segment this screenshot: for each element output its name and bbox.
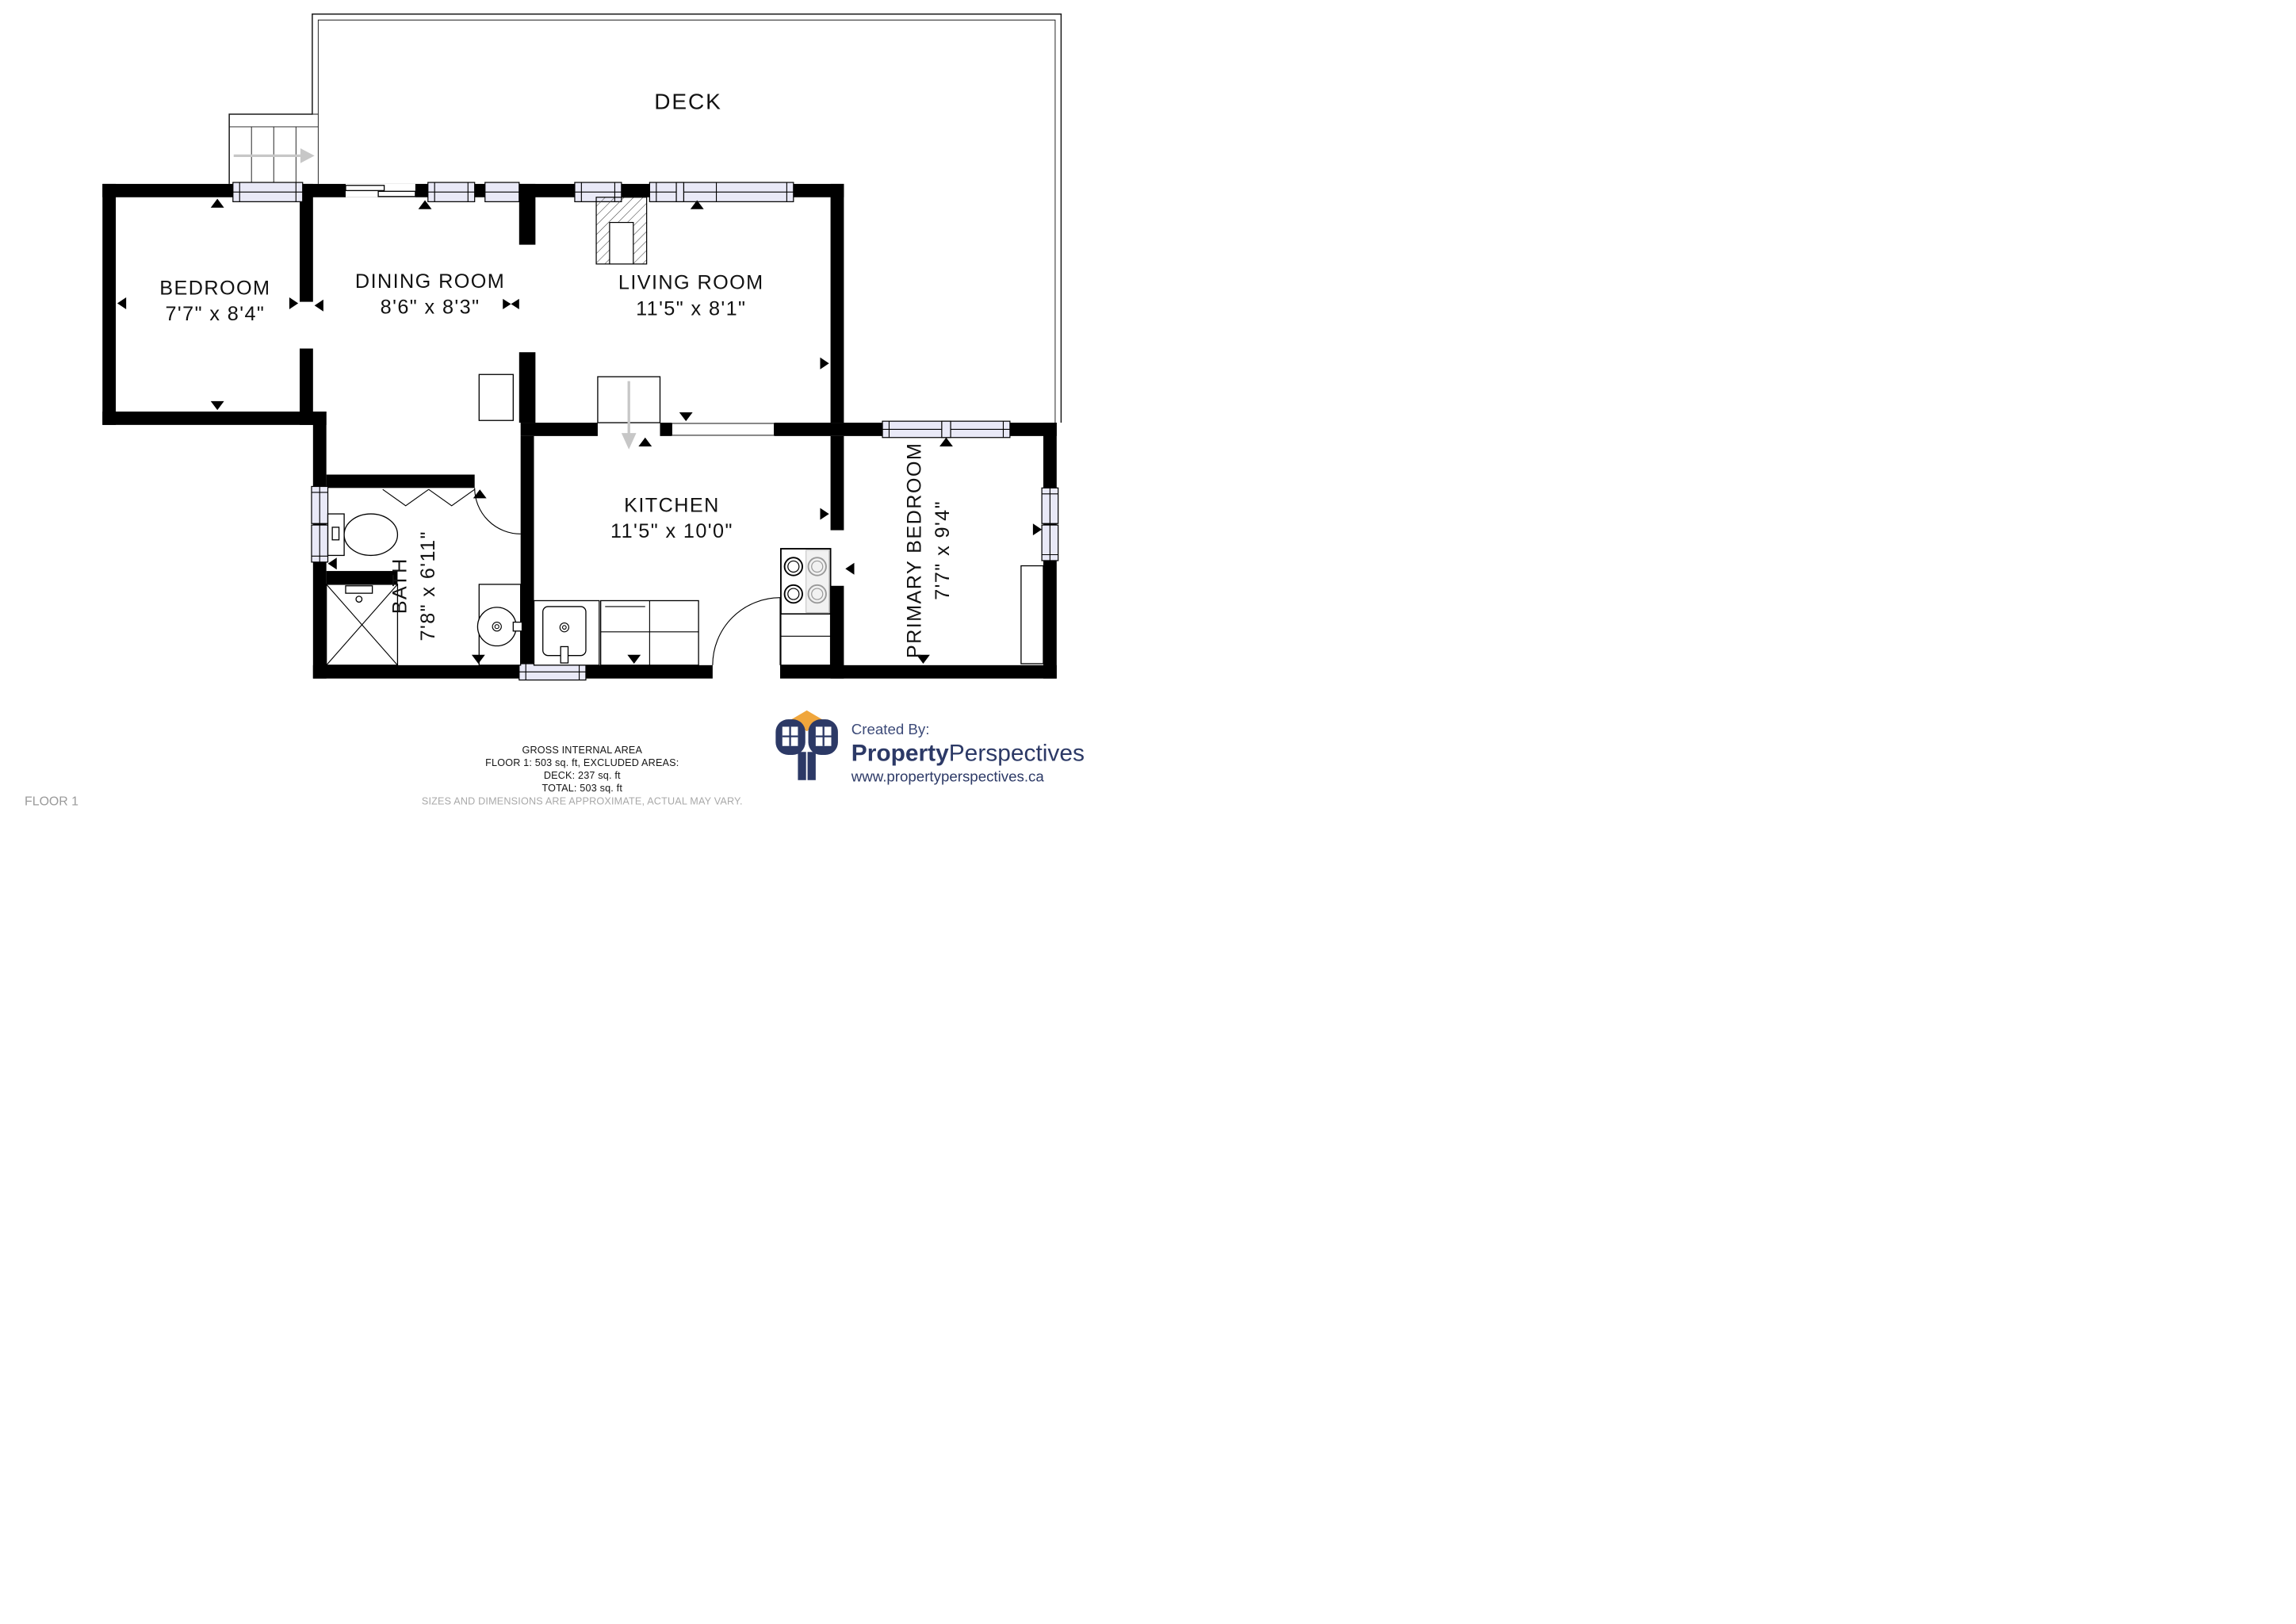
room-label-primary: PRIMARY BEDROOM xyxy=(904,442,926,659)
room-label-living: LIVING ROOM xyxy=(618,272,764,294)
shower-icon xyxy=(327,584,398,665)
closet-chevrons-icon xyxy=(383,489,475,506)
room-dims-kitchen: 11'5" x 10'0" xyxy=(610,520,733,542)
room-label-bedroom: BEDROOM xyxy=(159,277,270,299)
floor-tag: FLOOR 1 xyxy=(25,795,78,809)
window-icon xyxy=(485,182,519,201)
stairs-icon xyxy=(229,114,318,184)
area-floor-line: FLOOR 1: 503 sq. ft, EXCLUDED AREAS: xyxy=(485,757,679,768)
entry-door-icon xyxy=(598,377,660,450)
room-label-bath: BATH xyxy=(389,557,411,614)
area-summary: GROSS INTERNAL AREA FLOOR 1: 503 sq. ft,… xyxy=(422,745,743,807)
pass-through-opening xyxy=(672,423,774,435)
kitchen-door-gap xyxy=(713,665,780,680)
window-icon xyxy=(233,182,303,201)
created-by-label: Created By: xyxy=(851,721,930,737)
brand-logo: Created By: PropertyPerspectives www.pro… xyxy=(775,710,1085,785)
toilet-icon xyxy=(328,514,398,555)
room-label-kitchen: KITCHEN xyxy=(624,494,720,516)
room-dims-bedroom: 7'7" x 8'4" xyxy=(165,303,265,325)
area-disclaimer: SIZES AND DIMENSIONS ARE APPROXIMATE, AC… xyxy=(422,796,743,807)
kitchen-door-icon xyxy=(713,598,780,665)
area-total-line: TOTAL: 503 sq. ft xyxy=(542,783,623,794)
brand-name: PropertyPerspectives xyxy=(851,740,1085,766)
window-icon xyxy=(649,182,793,201)
kitchen-cabinet-icon xyxy=(781,614,831,665)
floor-plan-canvas: DECK xyxy=(0,0,1148,812)
kitchen-counter-icon xyxy=(601,600,698,665)
window-icon xyxy=(428,182,475,201)
sliding-door-icon xyxy=(346,184,415,197)
stove-icon xyxy=(781,549,831,614)
window-icon xyxy=(882,421,1010,438)
area-title: GROSS INTERNAL AREA xyxy=(522,745,642,756)
logo-mark-icon xyxy=(775,710,838,780)
primary-closet xyxy=(1021,566,1043,664)
room-label-dining: DINING ROOM xyxy=(355,270,505,293)
kitchen-sink-icon xyxy=(534,600,599,665)
brand-website: www.propertyperspectives.ca xyxy=(851,768,1045,785)
room-dims-living: 11'5" x 8'1" xyxy=(636,297,746,320)
bath-sink-icon xyxy=(477,584,522,665)
area-deck-line: DECK: 237 sq. ft xyxy=(544,770,621,781)
room-dims-dining: 8'6" x 8'3" xyxy=(381,297,480,319)
floor-plan-page: DECK xyxy=(0,0,1148,812)
room-label-deck: DECK xyxy=(654,89,721,113)
room-dims-primary: 7'7" x 9'4" xyxy=(932,500,954,600)
fireplace-icon xyxy=(596,197,647,264)
window-icon xyxy=(519,664,586,680)
hall-closet xyxy=(479,374,513,420)
room-dims-bath: 7'8" x 6'11" xyxy=(417,530,439,641)
